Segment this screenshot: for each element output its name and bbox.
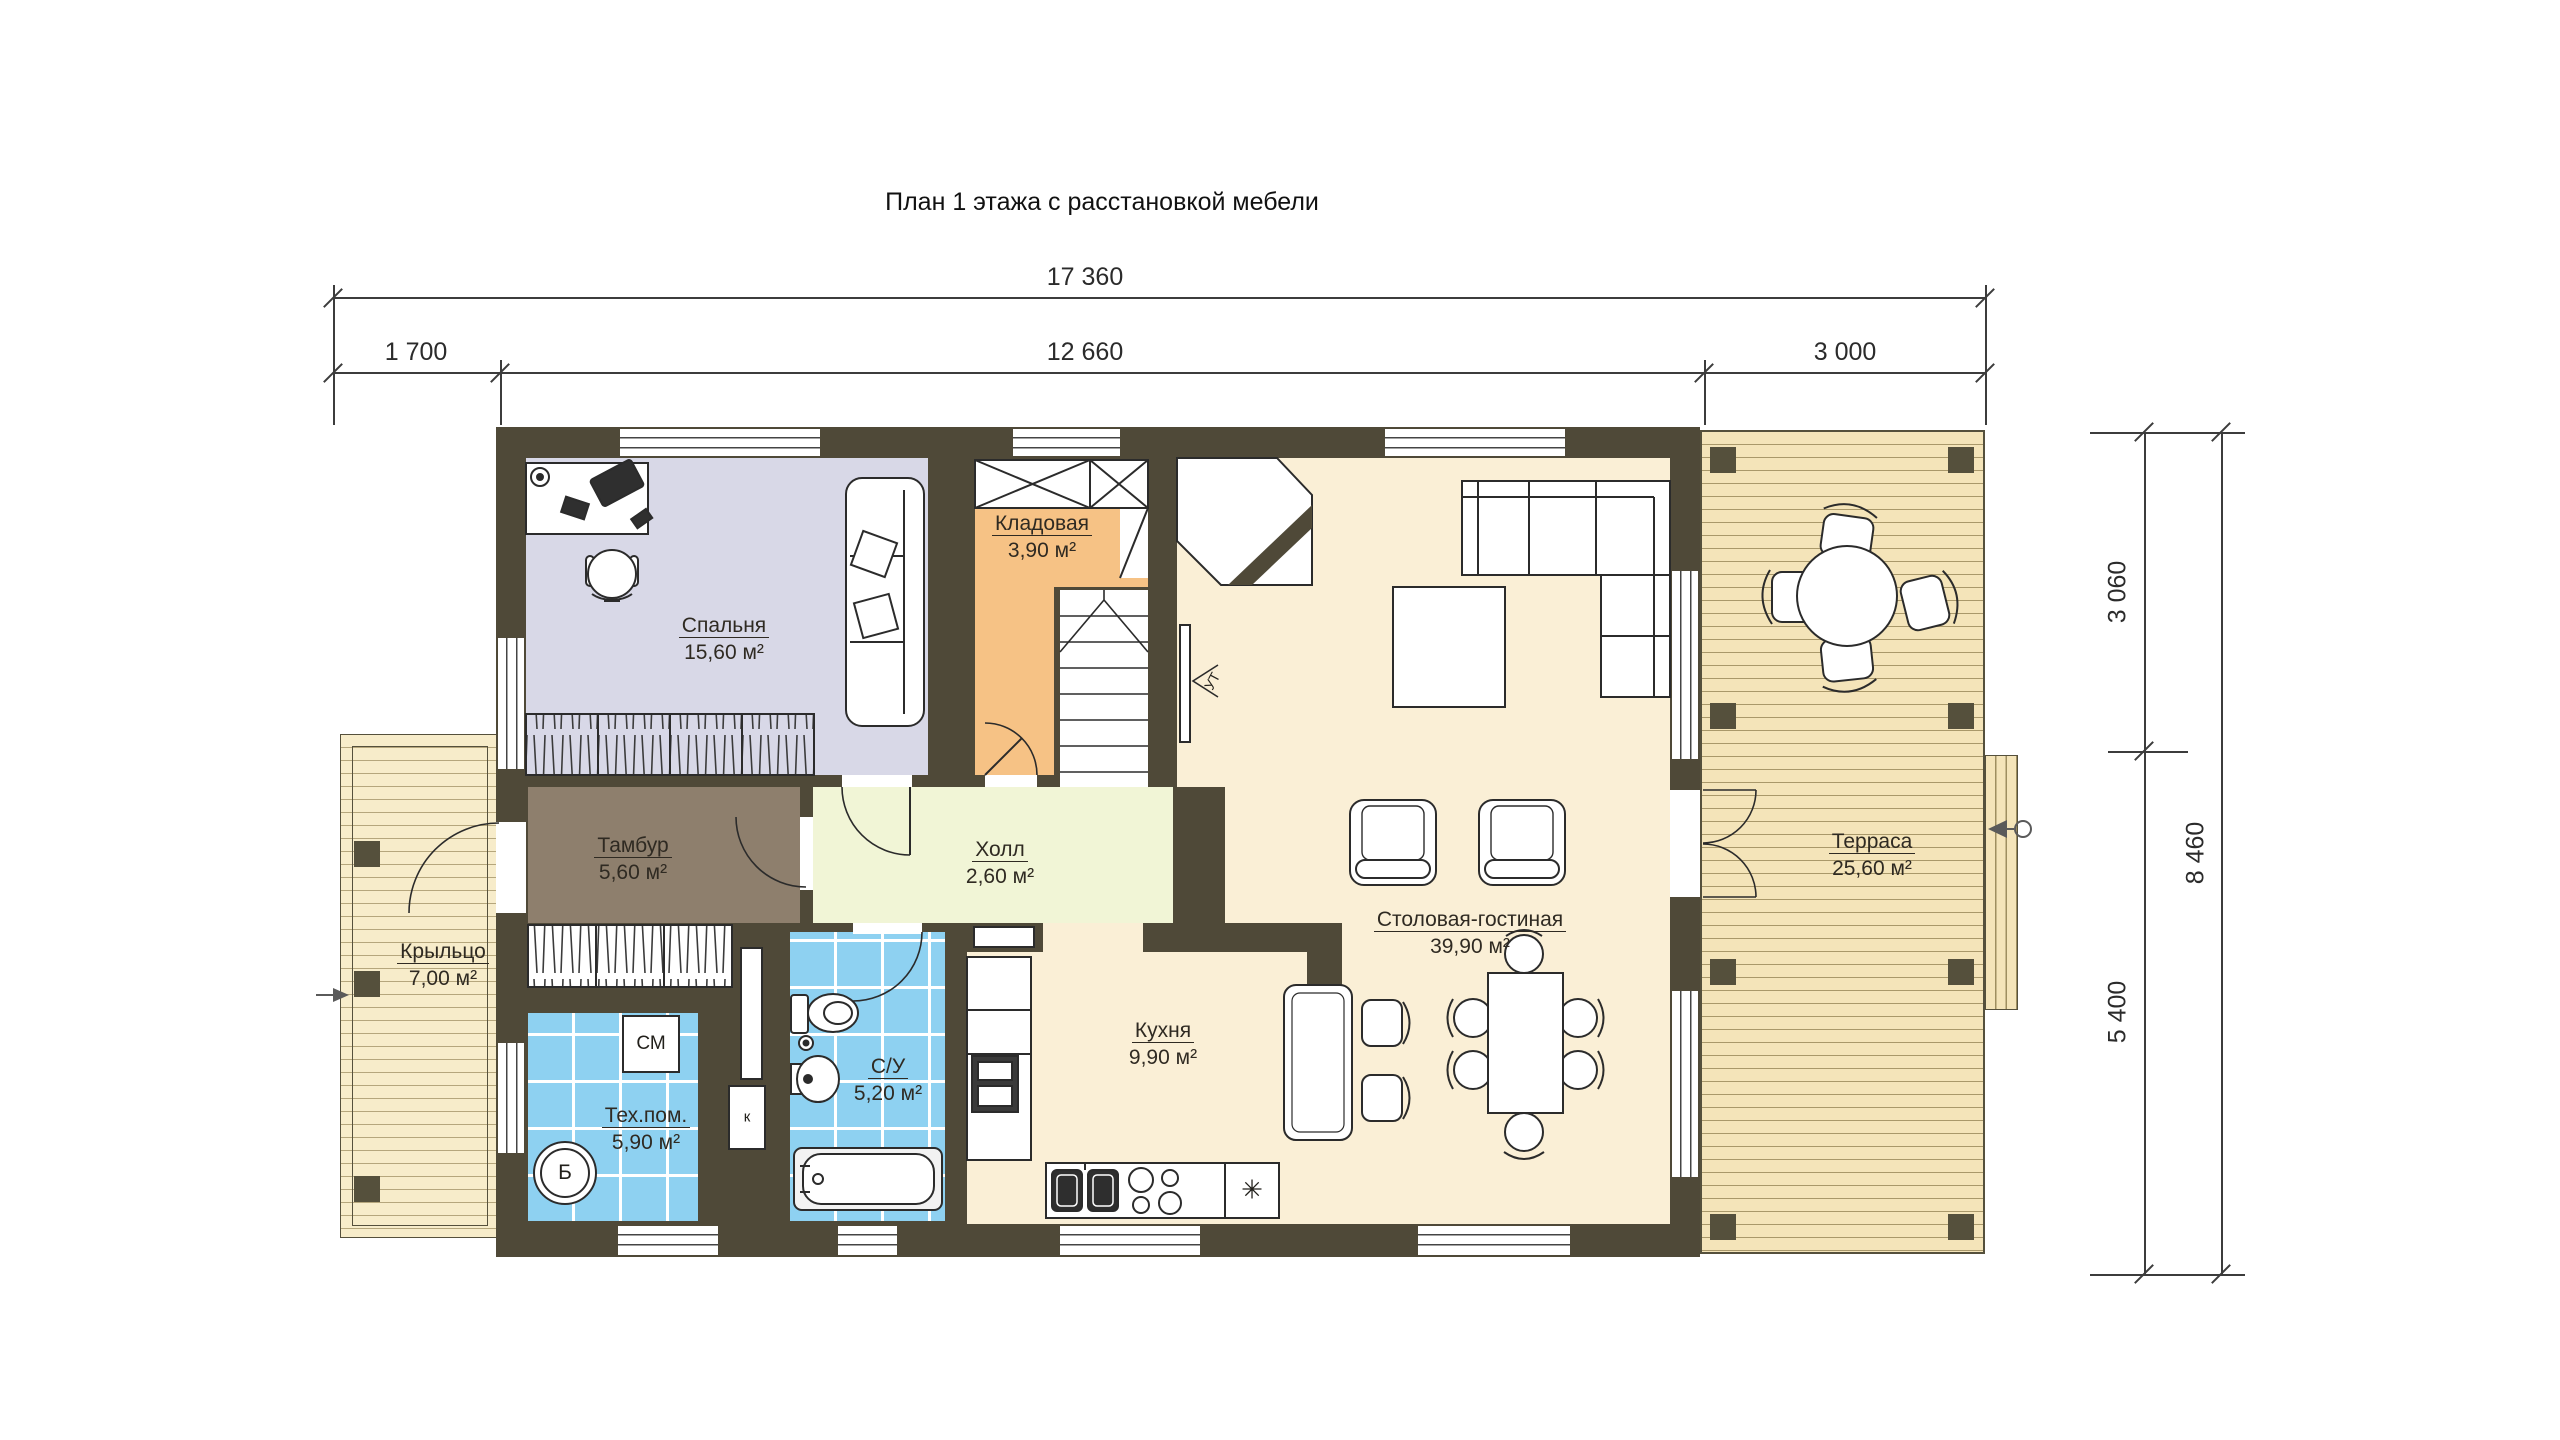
label-vestibule: Тамбур5,60 м² [503, 832, 763, 887]
storage-door [985, 723, 1037, 775]
washing-machine-mark: СМ [636, 1033, 665, 1055]
label-utility: Тех.пом.5,90 м² [516, 1102, 776, 1157]
coffee-table [1393, 587, 1505, 707]
bathroom-door [853, 932, 922, 1001]
label-kitchen: Кухня9,90 м² [1033, 1017, 1293, 1072]
label-bedroom: Спальня15,60 м² [594, 612, 854, 667]
staircase [1060, 590, 1148, 772]
label-porch: Крыльцо7,00 м² [313, 938, 573, 993]
label-terrace: Терраса25,60 м² [1742, 828, 2002, 883]
entry-door-swing [409, 823, 499, 913]
label-bathroom: С/У5,20 м² [758, 1053, 1018, 1108]
dining-table [1488, 973, 1563, 1113]
bedroom-desk [526, 459, 652, 534]
label-storage: Кладовая3,90 м² [912, 510, 1172, 565]
fridge-mark: ✳ [1241, 1175, 1263, 1206]
furniture-layer [0, 0, 2560, 1440]
bedroom-wardrobe [526, 714, 814, 775]
bathtub [794, 1148, 942, 1210]
terrace-table-set [1762, 501, 1963, 694]
toilet [791, 994, 858, 1050]
boiler-mark: Б [558, 1161, 572, 1185]
armchair [1479, 800, 1565, 885]
label-hall: Холл2,60 м² [870, 836, 1130, 891]
floor-plan-sheet: План 1 этажа с расстановкой мебели 17 36… [0, 0, 2560, 1440]
duct-mark: к [744, 1109, 751, 1126]
kitchen-island [1284, 985, 1352, 1140]
corner-fireplace [1177, 458, 1312, 585]
label-living: Столовая-гостиная39,90 м² [1340, 906, 1600, 961]
bar-stools [1362, 1000, 1410, 1121]
armchair [1350, 800, 1436, 885]
bedroom-chair [586, 550, 638, 601]
